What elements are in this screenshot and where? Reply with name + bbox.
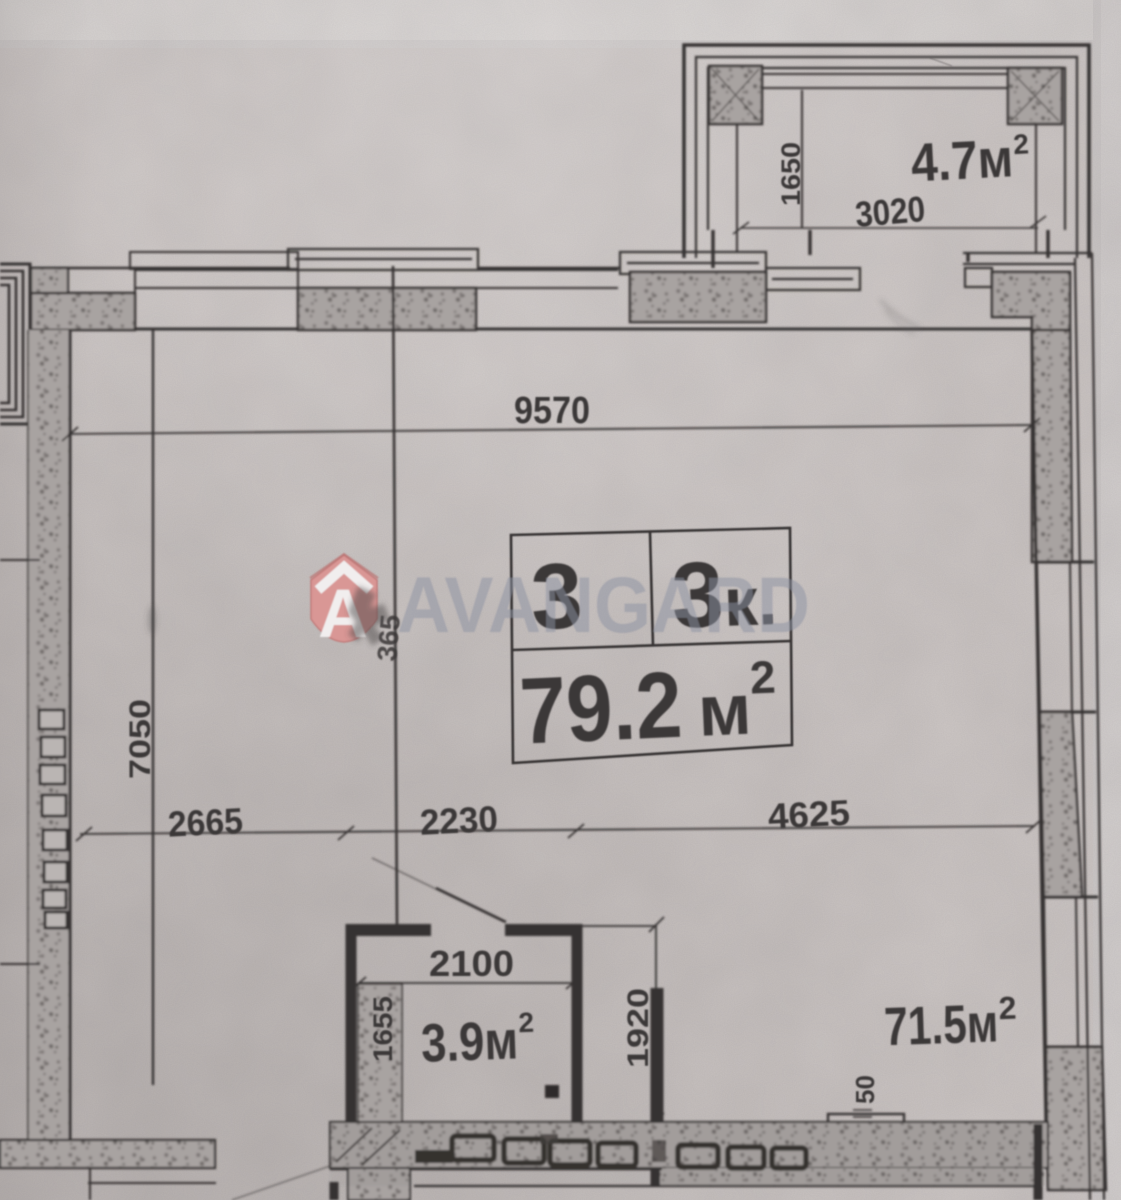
- svg-text:3020: 3020: [853, 188, 926, 235]
- svg-text:50: 50: [850, 1075, 880, 1104]
- svg-text:1655: 1655: [368, 996, 398, 1062]
- svg-text:2100: 2100: [429, 943, 514, 984]
- svg-text:AVANGARD: AVANGARD: [397, 560, 810, 649]
- svg-text:71.5м2: 71.5м2: [883, 990, 1018, 1058]
- svg-text:4625: 4625: [767, 792, 851, 837]
- svg-text:4.7м2: 4.7м2: [910, 127, 1032, 193]
- svg-text:1650: 1650: [776, 142, 806, 206]
- svg-text:9570: 9570: [514, 390, 590, 432]
- svg-text:2230: 2230: [419, 798, 499, 843]
- svg-text:7050: 7050: [124, 699, 157, 779]
- svg-text:1920: 1920: [622, 988, 655, 1068]
- svg-text:2665: 2665: [167, 800, 244, 845]
